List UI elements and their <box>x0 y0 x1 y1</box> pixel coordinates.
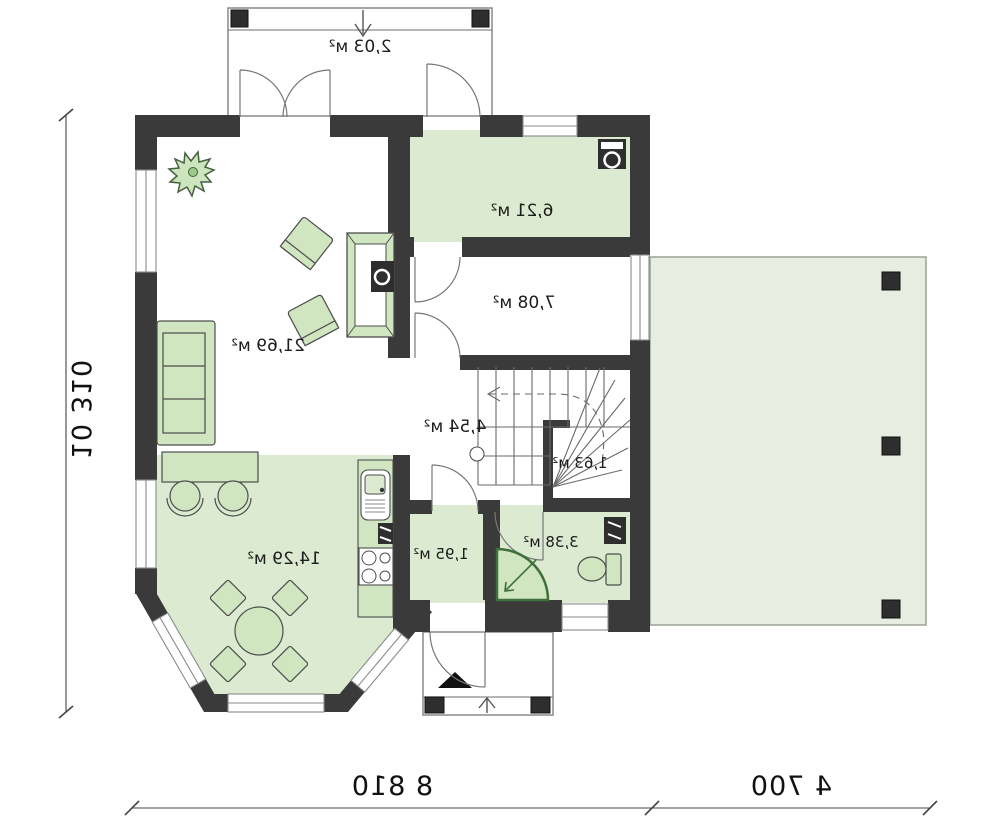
entrance-porch <box>423 632 553 715</box>
stove-icon <box>359 548 393 585</box>
utility-floor <box>402 130 630 242</box>
pillar-icon <box>472 10 489 27</box>
stair-newel <box>470 447 484 461</box>
pillar-icon <box>882 272 900 290</box>
plan-linework <box>0 0 1000 822</box>
pillar-icon <box>425 697 444 713</box>
bar-counter <box>162 452 258 482</box>
pillar-icon <box>882 437 900 455</box>
pillar-icon <box>531 697 550 713</box>
dishwasher-icon <box>378 523 393 544</box>
pillar-icon <box>231 10 248 27</box>
pillar-icon <box>882 600 900 618</box>
washing-machine-icon <box>598 139 626 169</box>
sink-icon <box>361 470 390 520</box>
dimension-bottom-terrace: 4 700 <box>696 772 886 802</box>
vestibule-floor <box>407 505 487 603</box>
boiler-icon <box>604 517 626 544</box>
floor-plan-canvas: 2,03 м² 6,21 м² 7,08 м² 21,69 м² 4,54 м²… <box>0 0 1000 822</box>
dimension-bottom-main: 8 810 <box>297 772 487 802</box>
fireplace-icon <box>347 233 394 337</box>
dimension-left: 10 310 <box>65 314 95 504</box>
sofa-icon <box>157 321 215 445</box>
wall-kitchen-divider <box>393 455 410 600</box>
top-porch <box>228 8 492 116</box>
